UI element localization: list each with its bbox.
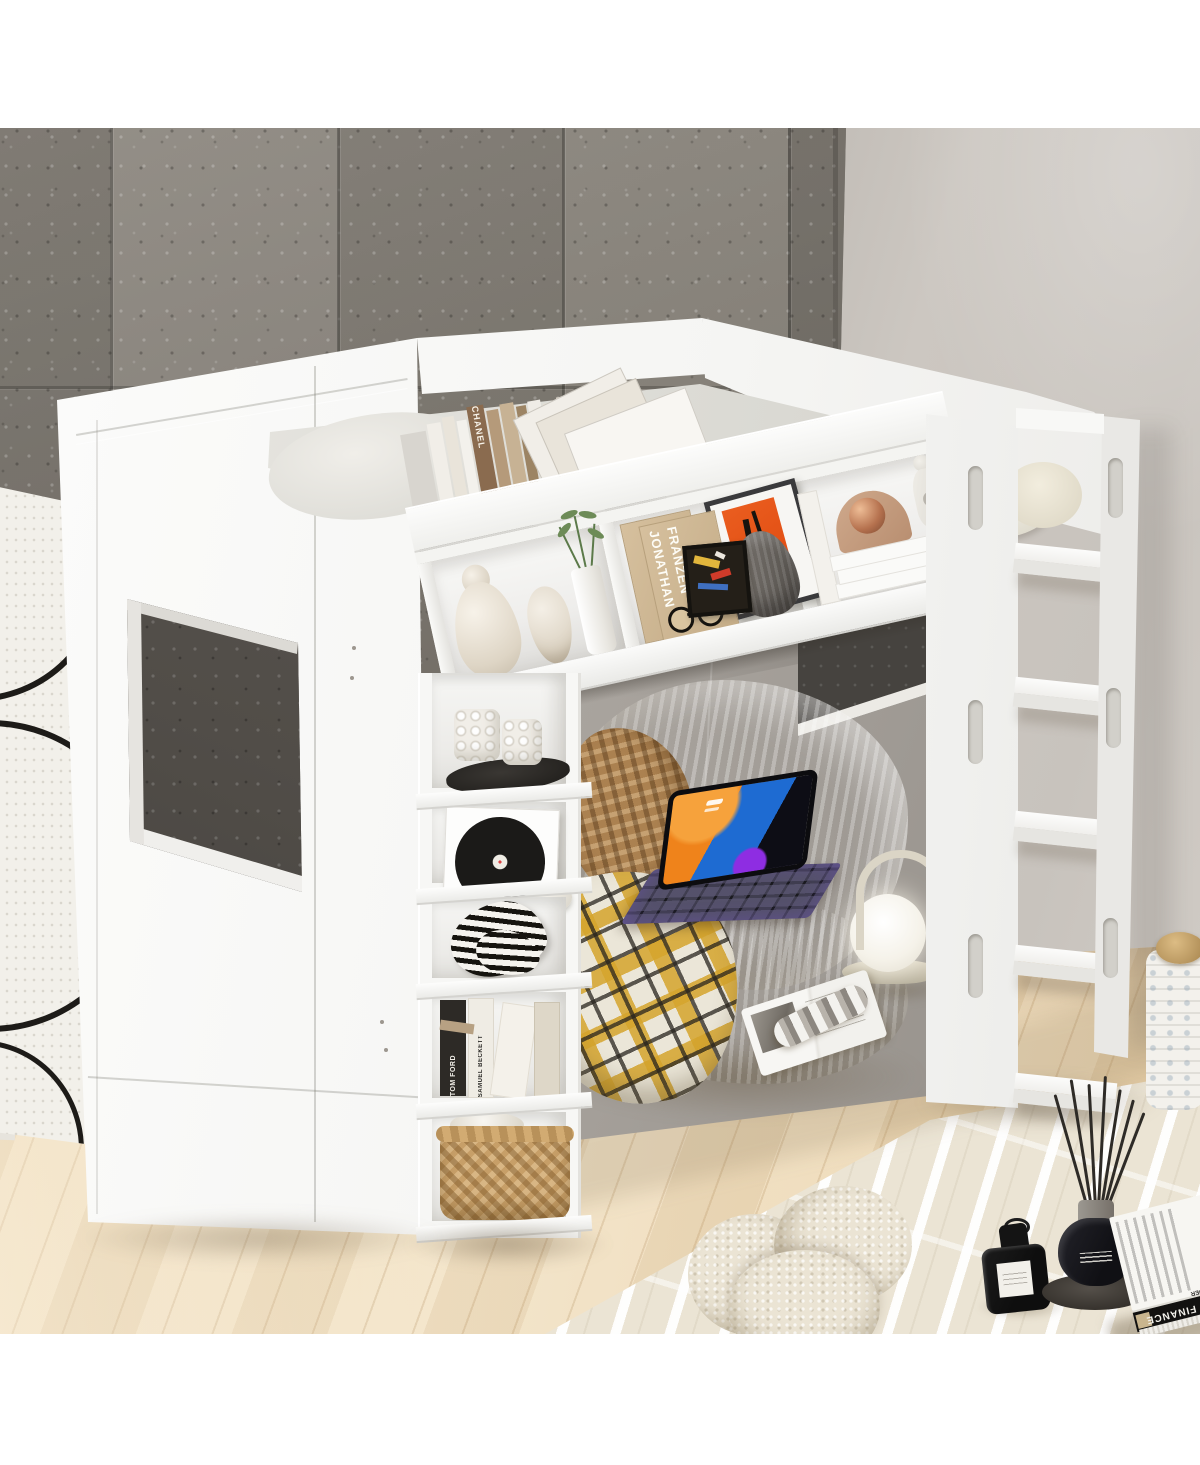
perfume-label xyxy=(996,1260,1033,1297)
leaning-white-book xyxy=(490,1002,539,1100)
speckled-storage-basket xyxy=(1146,950,1200,1110)
art-stroke xyxy=(710,568,731,581)
book-cover-photo xyxy=(1115,1208,1194,1304)
beige-book xyxy=(534,1002,560,1098)
diffuser-label-text xyxy=(1080,1251,1113,1263)
ladder-handle-slot xyxy=(968,466,983,530)
beckett-book: SAMUEL BECKETT xyxy=(468,998,494,1098)
art-stroke xyxy=(693,555,720,569)
top-white-margin xyxy=(0,0,1200,128)
perfume-label-text xyxy=(1002,1269,1027,1285)
screw-cap xyxy=(384,1048,388,1052)
product-photo: CHANEL xyxy=(0,128,1200,1334)
tom-ford-book: TOM FORD xyxy=(440,1000,466,1096)
screw-cap xyxy=(380,1020,384,1024)
wicker-basket xyxy=(440,1134,570,1220)
ladder-handle-slot xyxy=(968,700,983,764)
panel-floor-shadow xyxy=(80,1214,440,1262)
bottom-white-margin xyxy=(0,1334,1200,1465)
screw-cap xyxy=(350,676,354,680)
art-stroke xyxy=(715,551,726,560)
screenshot-stage: CHANEL xyxy=(0,0,1200,1465)
column-cubby-candles xyxy=(432,673,566,788)
chanel-spine-label: CHANEL xyxy=(470,405,487,450)
tom-ford-spine-label: TOM FORD xyxy=(450,1055,457,1096)
tablet-clock-widget xyxy=(706,798,724,806)
wicker-basket-rim xyxy=(436,1126,574,1142)
storage-column: TOM FORD SAMUEL BECKETT xyxy=(420,673,578,1238)
column-cubby-basket xyxy=(432,1112,566,1221)
ladder-handle-slot xyxy=(1103,918,1118,978)
panel-groove xyxy=(96,420,98,1214)
bubble-cube-candle xyxy=(454,709,500,761)
colorful-mini-frame xyxy=(682,540,752,618)
bubble-cube-candle xyxy=(502,719,542,765)
ladder-handle-slot xyxy=(1108,458,1123,518)
art-stroke xyxy=(698,583,728,590)
ladder-handle-slot xyxy=(1106,688,1121,748)
black-perfume-bottle xyxy=(981,1243,1052,1315)
column-cubby-vinyl xyxy=(432,802,566,883)
column-cubby-vase xyxy=(432,897,566,978)
ladder-handle-slot xyxy=(968,934,983,998)
beckett-spine-label: SAMUEL BECKETT xyxy=(478,1035,484,1097)
basket-wood-lid xyxy=(1156,932,1200,964)
column-cubby-books: TOM FORD SAMUEL BECKETT xyxy=(432,992,566,1098)
tablet-with-keyboard xyxy=(642,772,854,939)
screw-cap xyxy=(352,646,356,650)
